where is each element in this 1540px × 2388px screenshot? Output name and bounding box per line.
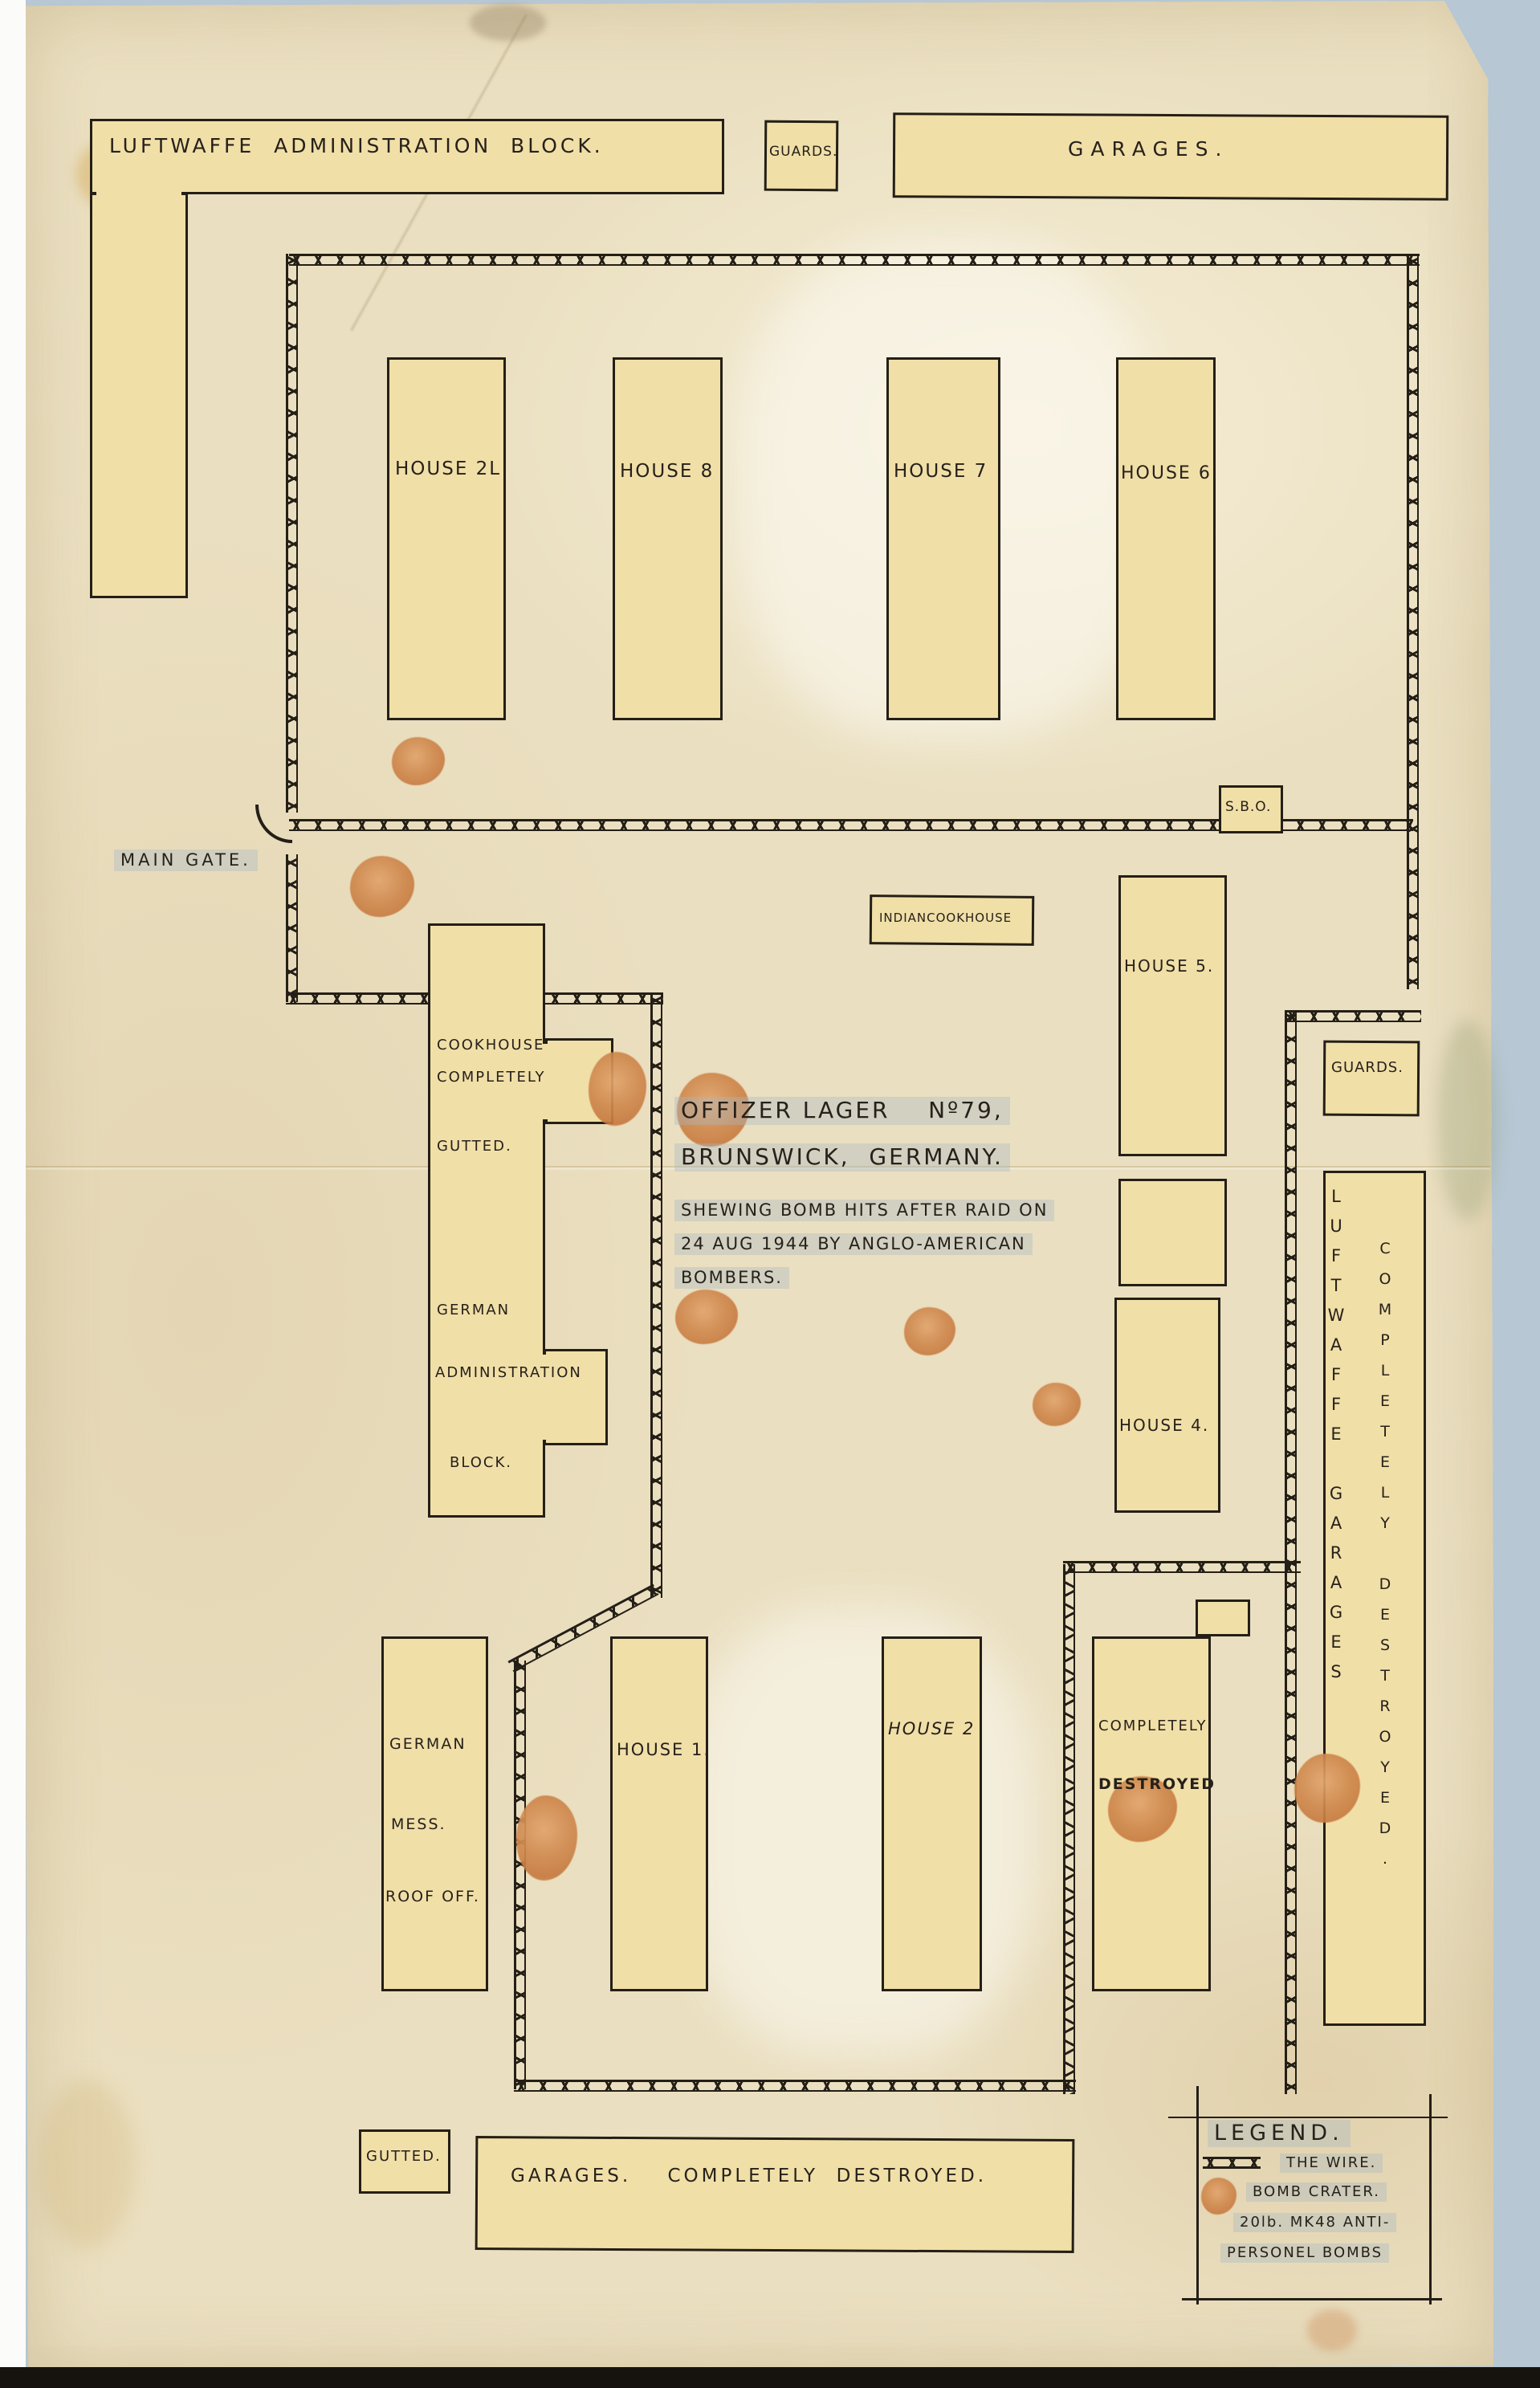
- guards-hut-right: [1323, 1041, 1420, 1117]
- guards-top-label: GUARDS.: [769, 145, 837, 160]
- luftwaffe-admin-block-wing: [90, 193, 188, 598]
- house-5: [1118, 875, 1227, 1156]
- cookhouse-admin-bump: [544, 1349, 608, 1445]
- indian-cookhouse-label: INDIANCOOKHOUSE: [879, 911, 1012, 925]
- legend-border-top: [1168, 2117, 1448, 2118]
- cookhouse-label-1: COOKHOUSE: [437, 1037, 544, 1053]
- hut-unlabeled-right: [1118, 1179, 1227, 1286]
- destroyed-house-label-2: DESTROYED: [1098, 1776, 1216, 1793]
- wire-fence-segment: [289, 254, 1420, 266]
- garages-bottom: [475, 2136, 1075, 2253]
- map-note-line2: 24 AUG 1944 BY ANGLO-AMERICAN: [674, 1233, 1033, 1255]
- legend-border-right: [1429, 2094, 1432, 2304]
- house-2-label: HOUSE 2: [888, 1720, 975, 1738]
- destroyed-house-label-1: COMPLETELY: [1098, 1718, 1208, 1734]
- legend-border-bottom: [1182, 2298, 1442, 2300]
- german-mess-label-1: GERMAN: [389, 1736, 466, 1753]
- house-1-label: HOUSE 1.: [617, 1741, 711, 1759]
- hut-unlabeled-corner: [1196, 1599, 1250, 1636]
- german-admin-label-2: ADMINISTRATION: [435, 1365, 582, 1381]
- wire-fence-segment: [1063, 1564, 1075, 2094]
- garages-top-label: GARAGES.: [1068, 138, 1228, 161]
- luftwaffe-admin-label: LUFTWAFFE ADMINISTRATION BLOCK.: [109, 135, 604, 157]
- wire-fence-segment: [286, 854, 298, 1002]
- german-mess-label-2: MESS.: [391, 1816, 446, 1833]
- house-2l-label: HOUSE 2L: [395, 459, 501, 479]
- legend-title: LEGEND.: [1208, 2120, 1351, 2147]
- wire-fence-segment: [286, 254, 298, 813]
- map-note-line3: BOMBERS.: [674, 1267, 789, 1289]
- scanner-edge-left: [0, 0, 26, 2388]
- scanner-edge-bottom: [0, 2367, 1540, 2388]
- cookhouse-admin-block: [428, 923, 545, 1518]
- house-7-label: HOUSE 7: [894, 462, 988, 482]
- legend-bombs-label-2: PERSONEL BOMBS: [1220, 2243, 1389, 2263]
- paper-light-patch: [682, 1606, 1036, 2056]
- building-seam: [96, 189, 181, 198]
- legend-crater-label: BOMB CRATER.: [1246, 2182, 1387, 2202]
- wire-fence-segment: [514, 1661, 526, 2089]
- house-7: [886, 357, 1000, 720]
- german-mess-label-3: ROOF OFF.: [385, 1889, 480, 1905]
- house-4-label: HOUSE 4.: [1119, 1416, 1209, 1434]
- sbo-label: S.B.O.: [1225, 800, 1271, 815]
- house-8: [613, 357, 723, 720]
- house-6: [1116, 357, 1216, 720]
- wire-fence-segment: [514, 2080, 1076, 2092]
- german-admin-label-3: BLOCK.: [450, 1455, 512, 1471]
- map-title-line1: OFFIZER LAGER Nº79,: [674, 1097, 1010, 1125]
- legend-border-left: [1196, 2086, 1199, 2304]
- legend-bombs-label-1: 20lb. MK48 ANTI-: [1233, 2213, 1396, 2232]
- german-mess: [381, 1636, 488, 1991]
- map-note-line1: SHEWING BOMB HITS AFTER RAID ON: [674, 1200, 1054, 1221]
- german-admin-label-1: GERMAN: [437, 1302, 510, 1318]
- wire-fence-segment: [1407, 254, 1419, 989]
- scanner-edge-right: [1493, 0, 1540, 2388]
- garages-destroyed-label: COMPLETELY DESTROYED.: [1376, 1240, 1394, 2011]
- house-8-label: HOUSE 8: [620, 462, 714, 482]
- wire-fence-segment: [1063, 1561, 1301, 1573]
- legend-wire-symbol: [1203, 2157, 1261, 2169]
- house-6-label: HOUSE 6: [1121, 464, 1212, 483]
- house-1: [610, 1636, 708, 1991]
- garages-bottom-label: GARAGES. COMPLETELY DESTROYED.: [511, 2166, 987, 2186]
- house-2l: [387, 357, 506, 720]
- map-title-line2: BRUNSWICK, GERMANY.: [674, 1143, 1010, 1172]
- guards-right-label: GUARDS.: [1331, 1060, 1404, 1076]
- cookhouse-label-2: COMPLETELY: [437, 1070, 546, 1086]
- wire-fence-segment: [1285, 1010, 1297, 2094]
- cookhouse-label-3: GUTTED.: [437, 1139, 512, 1155]
- legend-wire-label: THE WIRE.: [1280, 2154, 1383, 2173]
- luftwaffe-garages-label: LUFTWAFFE GARAGES: [1326, 1187, 1346, 2014]
- wire-fence-segment: [1285, 1010, 1421, 1022]
- house-4: [1114, 1298, 1220, 1513]
- house-5-label: HOUSE 5.: [1124, 957, 1214, 975]
- gutted-label: GUTTED.: [366, 2149, 442, 2165]
- main-gate-label: MAIN GATE.: [114, 850, 258, 871]
- house-2: [882, 1636, 982, 1991]
- wire-fence-segment: [650, 992, 662, 1598]
- pow-camp-map: LUFTWAFFE ADMINISTRATION BLOCK. GUARDS. …: [0, 0, 1540, 2388]
